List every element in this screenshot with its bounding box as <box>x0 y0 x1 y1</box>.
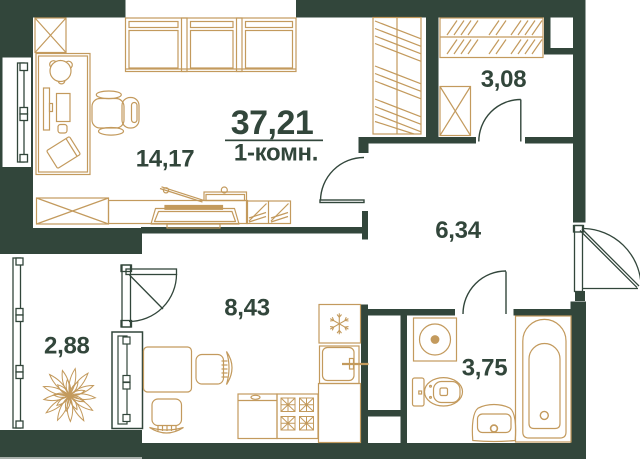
svg-text:3,08: 3,08 <box>481 66 527 93</box>
svg-text:1-комн.: 1-комн. <box>234 140 318 167</box>
svg-text:3,75: 3,75 <box>462 355 508 382</box>
svg-text:2,88: 2,88 <box>44 333 90 360</box>
svg-text:6,34: 6,34 <box>435 217 481 244</box>
svg-text:8,43: 8,43 <box>224 295 270 322</box>
svg-text:14,17: 14,17 <box>136 146 195 173</box>
svg-text:37,21: 37,21 <box>231 104 314 142</box>
